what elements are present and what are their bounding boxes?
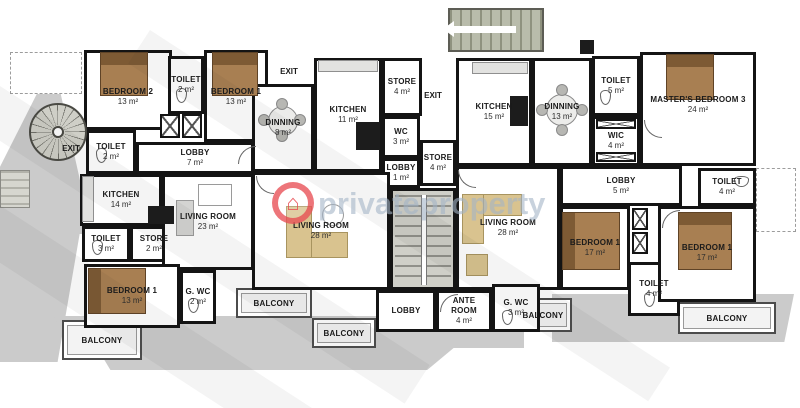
balcony-label: BALCONY (707, 314, 748, 323)
stove (148, 206, 174, 224)
room-g-wc-a: G. WC2 m² (180, 270, 216, 324)
brand-logo: ⌂ (272, 182, 314, 224)
room-area: 4 m² (646, 289, 662, 299)
room-area: 24 m² (688, 105, 708, 115)
room-label: WC (394, 127, 408, 137)
room-area: 2 m² (178, 85, 194, 95)
room-area: 8 m² (275, 128, 291, 138)
room-label: KITCHEN (103, 190, 140, 200)
room-kitchen-b: KITCHEN11 m² (314, 58, 382, 172)
balcony-label: BALCONY (82, 336, 123, 345)
room-label: LOBBY (387, 163, 416, 173)
room-lobby-d: LOBBY (376, 290, 436, 332)
roof-overhang-line (756, 168, 796, 232)
kitchen-counter (472, 62, 528, 74)
stair-direction-arrowhead (443, 21, 454, 37)
balcony-label: BALCONY (254, 299, 295, 308)
room-area: 2 m² (190, 297, 206, 307)
room-label: KITCHEN (330, 105, 367, 115)
stove (356, 122, 380, 150)
house-icon: ⌂ (286, 192, 299, 214)
room-label: LOBBY (181, 148, 210, 158)
armchair (466, 254, 488, 276)
room-store-b: STORE4 m² (382, 58, 422, 116)
room-area: 17 m² (697, 253, 717, 263)
floor-plan: BALCONYBALCONYBALCONYBALCONYBALCONY BEDR… (0, 0, 800, 408)
room-label: LOBBY (392, 306, 421, 316)
room-label: STORE (140, 234, 168, 244)
room-area: 15 m² (484, 112, 504, 122)
room-label: BEDROOM 2 (103, 87, 153, 97)
shaft (160, 114, 180, 138)
balcony: BALCONY (312, 318, 376, 348)
room-label: TOILET (91, 234, 121, 244)
room-label: LOBBY (607, 176, 636, 186)
chair (276, 98, 288, 110)
brand-watermark-text: privateproperty (318, 186, 545, 222)
exit-label: EXIT (272, 67, 306, 76)
room-area: 3 m² (98, 244, 114, 254)
room-area: 4 m² (394, 87, 410, 97)
room-area: 28 m² (498, 228, 518, 238)
coffee-table (198, 184, 232, 206)
room-area: 4 m² (456, 316, 472, 326)
room-ante-room: ANTE ROOM4 m² (436, 290, 492, 332)
room-label: G. WC (504, 298, 529, 308)
closet-shaft (596, 119, 636, 129)
room-area: 3 m² (508, 308, 524, 318)
column (580, 40, 594, 54)
balcony-label: BALCONY (324, 329, 365, 338)
room-label: KITCHEN (476, 102, 513, 112)
room-toilet-e: TOILET5 m² (592, 56, 640, 116)
chair (556, 124, 568, 136)
exit-label: EXIT (54, 144, 88, 153)
room-lobby-c: LOBBY5 m² (560, 166, 682, 206)
room-label: TOILET (712, 177, 742, 187)
kitchen-counter (82, 176, 94, 222)
room-label: BEDROOM 1 (107, 286, 157, 296)
shaft (182, 114, 202, 138)
room-area: 23 m² (198, 222, 218, 232)
room-label: LIVING ROOM (293, 221, 349, 231)
room-label: STORE (388, 77, 416, 87)
room-label: LIVING ROOM (180, 212, 236, 222)
room-area: 13 m² (122, 296, 142, 306)
room-label: BEDROOM 1 (682, 243, 732, 253)
room-label: WIC (608, 131, 624, 141)
balcony: BALCONY (678, 302, 776, 334)
room-toilet-f: TOILET4 m² (698, 168, 756, 206)
room-label: ANTE ROOM (439, 296, 489, 316)
fridge (510, 96, 528, 126)
room-label: STORE (424, 153, 452, 163)
chair (556, 84, 568, 96)
room-label: DINNING (265, 118, 300, 128)
room-label: G. WC (186, 287, 211, 297)
room-area: 13 m² (226, 97, 246, 107)
exit-label: EXIT (416, 91, 450, 100)
room-area: 13 m² (118, 97, 138, 107)
room-toilet-a: TOILET2 m² (168, 56, 204, 114)
room-label: TOILET (171, 75, 201, 85)
room-label: TOILET (601, 76, 631, 86)
ground-shadow (96, 346, 456, 370)
room-label: DINNING (544, 102, 579, 112)
room-area: 2 m² (146, 244, 162, 254)
room-area: 11 m² (338, 115, 358, 125)
room-label: BEDROOM 1 (570, 238, 620, 248)
room-wc-a: WC3 m² (382, 116, 420, 158)
room-toilet-c: TOILET3 m² (82, 226, 130, 262)
room-area: 14 m² (111, 200, 131, 210)
room-area: 1 m² (393, 173, 409, 183)
room-label: MASTER'S BEDROOM 3 (650, 95, 745, 105)
room-area: 3 m² (393, 137, 409, 147)
bed (666, 54, 714, 100)
balcony: BALCONY (236, 288, 312, 318)
room-label: BEDROOM 1 (211, 87, 261, 97)
stair-direction-arrow (454, 26, 516, 33)
room-area: 5 m² (613, 186, 629, 196)
room-area: 13 m² (552, 112, 572, 122)
room-label: TOILET (639, 279, 669, 289)
shaft (632, 208, 648, 230)
closet-shaft (596, 152, 636, 162)
room-area: 5 m² (608, 86, 624, 96)
room-area: 4 m² (719, 187, 735, 197)
room-store-c: STORE4 m² (420, 140, 456, 186)
room-area: 7 m² (187, 158, 203, 168)
shaft (632, 232, 648, 254)
room-lobby-a: LOBBY7 m² (136, 142, 254, 174)
balcony-label: BALCONY (523, 311, 564, 320)
room-area: 17 m² (585, 248, 605, 258)
kitchen-counter (318, 60, 378, 72)
room-area: 4 m² (430, 163, 446, 173)
room-g-wc-b: G. WC3 m² (492, 284, 540, 332)
room-area: 2 m² (103, 152, 119, 162)
room-toilet-b: TOILET2 m² (86, 130, 136, 174)
exterior-steps (0, 170, 30, 208)
roof-overhang-line (10, 52, 82, 94)
room-area: 4 m² (608, 141, 624, 151)
room-area: 28 m² (311, 231, 331, 241)
room-label: TOILET (96, 142, 126, 152)
